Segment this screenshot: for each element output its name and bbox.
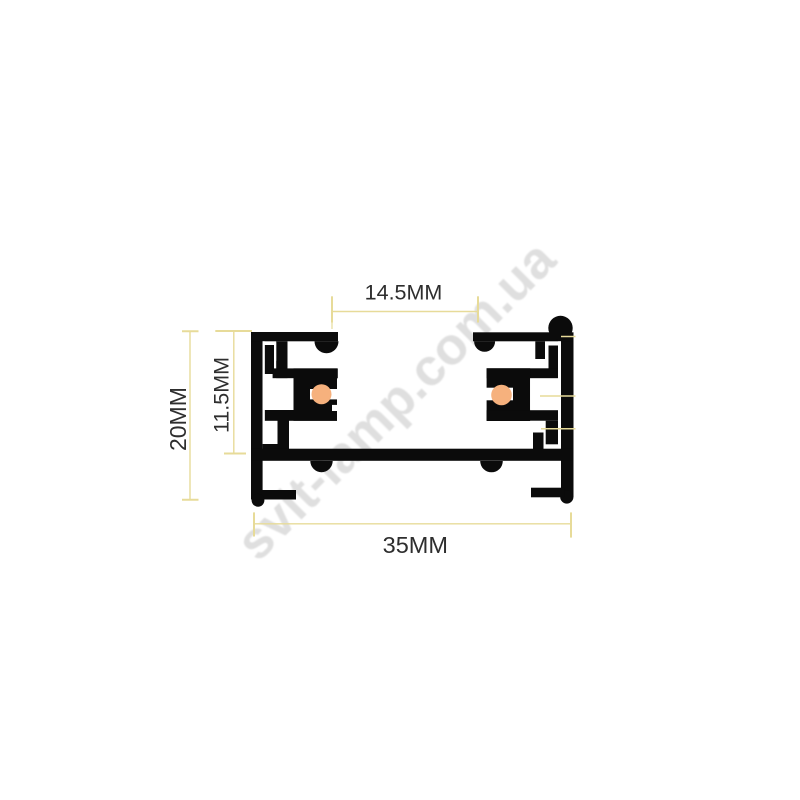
- svg-text:20MM: 20MM: [165, 387, 191, 451]
- svg-text:14.5MM: 14.5MM: [365, 280, 443, 304]
- svg-text:35MM: 35MM: [383, 532, 448, 558]
- svg-text:11.5MM: 11.5MM: [210, 357, 234, 433]
